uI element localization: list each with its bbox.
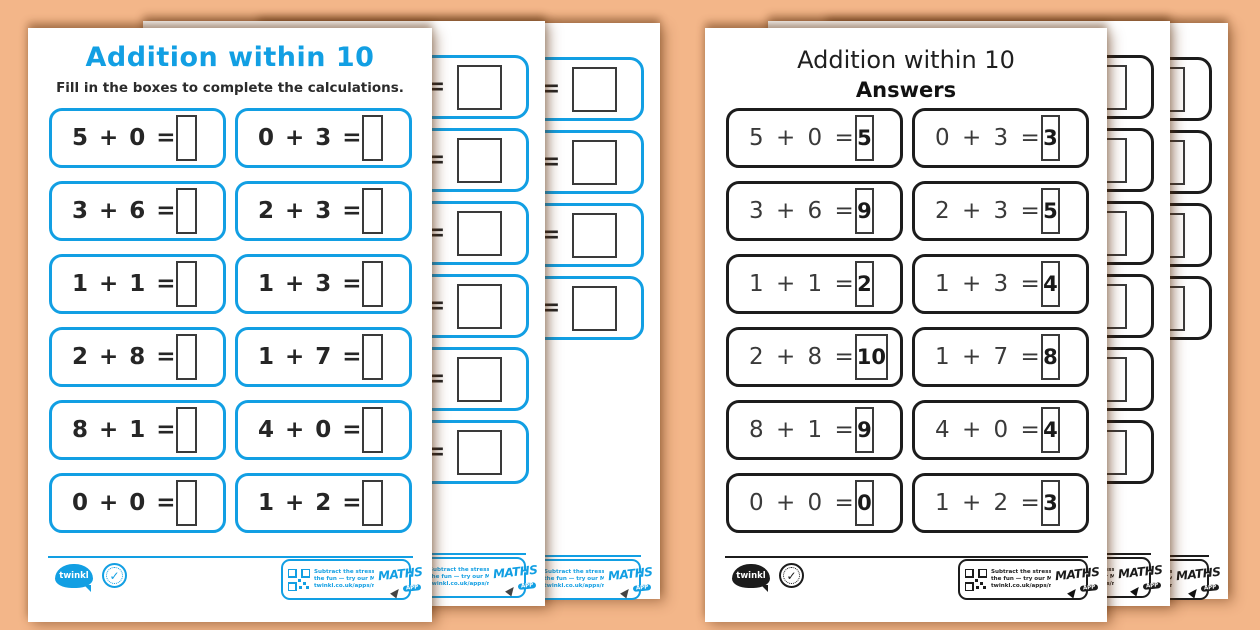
answer-box-empty	[362, 334, 383, 380]
problem-expression: 0 + 3 =	[258, 125, 362, 151]
answer-value: 9	[855, 188, 874, 234]
problem-expression: 1 + 3 =	[935, 271, 1041, 297]
answer-box-empty	[362, 480, 383, 526]
answer-box-empty	[572, 286, 617, 331]
answer-value: 0	[855, 480, 874, 526]
answer-value: 3	[1041, 115, 1060, 161]
promo-line-1: Subtract the stress, multiply	[544, 569, 604, 576]
promo-link: twinkl.co.uk/apps/maths	[544, 583, 604, 590]
maths-app-wordmark: MATHS	[1054, 564, 1099, 583]
footer-divider	[725, 556, 1088, 558]
app-badge: APP	[1200, 584, 1219, 592]
problem-box: 0 + 3 =	[235, 108, 412, 168]
problem-expression: 0 + 0 =	[749, 490, 855, 516]
answer-value: 5	[855, 115, 874, 161]
problem-expression: 2 + 3 =	[935, 198, 1041, 224]
answer-row: 2 + 3 =5	[912, 181, 1089, 241]
problem-expression: 8 + 1 =	[72, 417, 176, 443]
problem-expression: 5 + 0 =	[749, 125, 855, 151]
problem-expression: 2 + 8 =	[72, 344, 176, 370]
problem-box: 1 + 1 =	[49, 254, 226, 314]
problem-expression: 0 + 0 =	[72, 490, 176, 516]
promo-line-2: the fun — try our Maths App!	[429, 574, 489, 581]
promo-line-1: Subtract the stress, multiply	[314, 569, 374, 576]
page-title: Addition within 10	[705, 46, 1107, 74]
cursor-icon	[505, 584, 517, 596]
cursor-icon	[390, 586, 402, 598]
maths-app-wordmark: MATHS	[1117, 562, 1162, 581]
maths-app-promo: Subtract the stress, multiply the fun — …	[958, 559, 1088, 600]
answer-row: 1 + 3 =4	[912, 254, 1089, 314]
answer-box-empty	[572, 67, 617, 112]
answer-box-empty	[176, 188, 197, 234]
problem-expression: 3 + 6 =	[749, 198, 855, 224]
problem-expression: 5 + 0 =	[72, 125, 176, 151]
answer-box-empty	[176, 334, 197, 380]
answer-box-empty	[457, 211, 502, 256]
problem-box: 5 + 0 =	[49, 108, 226, 168]
answer-value: 4	[1041, 261, 1060, 307]
preview-background: = = = = Subtract the stress, multiply th…	[0, 0, 1260, 630]
problem-expression: 1 + 7 =	[258, 344, 362, 370]
problem-box: 4 + 0 =	[235, 400, 412, 460]
answer-row: 1 + 1 =2	[726, 254, 903, 314]
answers-heading: Answers	[705, 78, 1107, 102]
answer-box-empty	[176, 480, 197, 526]
answer-box-empty	[457, 430, 502, 475]
problem-expression: 2 + 8 =	[749, 344, 855, 370]
app-badge: APP	[1142, 582, 1161, 590]
cursor-icon	[1188, 586, 1200, 598]
problem-expression: 1 + 1 =	[749, 271, 855, 297]
answer-box-empty	[457, 357, 502, 402]
quality-approved-badge: ✓	[102, 563, 127, 588]
app-badge: APP	[1079, 584, 1098, 592]
problem-box: 2 + 8 =	[49, 327, 226, 387]
app-badge: APP	[402, 584, 421, 592]
answer-value: 10	[855, 334, 888, 380]
promo-link: twinkl.co.uk/apps/maths	[314, 583, 374, 590]
problem-expression: 4 + 0 =	[258, 417, 362, 443]
promo-text: Subtract the stress, multiply the fun — …	[429, 567, 489, 588]
answer-box-empty	[176, 115, 197, 161]
answer-box-empty	[572, 213, 617, 258]
promo-line-2: the fun — try our Maths App!	[544, 576, 604, 583]
worksheet-page: Addition within 10 Fill in the boxes to …	[28, 28, 432, 622]
answer-value: 8	[1041, 334, 1060, 380]
promo-text: Subtract the stress, multiply the fun — …	[991, 569, 1051, 590]
answer-box-empty	[362, 407, 383, 453]
answer-row: 2 + 8 =10	[726, 327, 903, 387]
promo-text: Subtract the stress, multiply the fun — …	[544, 569, 604, 590]
problem-box: 2 + 3 =	[235, 181, 412, 241]
answer-box-empty	[176, 407, 197, 453]
answer-value: 3	[1041, 480, 1060, 526]
qr-code-icon	[965, 569, 987, 591]
answer-row: 3 + 6 =9	[726, 181, 903, 241]
promo-line-2: the fun — try our Maths App!	[314, 576, 374, 583]
problem-box: 1 + 2 =	[235, 473, 412, 533]
problem-box: 3 + 6 =	[49, 181, 226, 241]
check-icon: ✓	[786, 569, 796, 583]
problem-box: 0 + 0 =	[49, 473, 226, 533]
promo-link: twinkl.co.uk/apps/maths	[429, 581, 489, 588]
answer-row: 0 + 3 =3	[912, 108, 1089, 168]
answer-row: 0 + 0 =0	[726, 473, 903, 533]
answer-row: 1 + 7 =8	[912, 327, 1089, 387]
problem-expression: 1 + 1 =	[72, 271, 176, 297]
answer-box-empty	[457, 284, 502, 329]
problem-expression: 8 + 1 =	[749, 417, 855, 443]
problem-box: 1 + 3 =	[235, 254, 412, 314]
footer-divider	[48, 556, 413, 558]
page-title: Addition within 10	[28, 42, 432, 73]
answer-box-empty	[457, 138, 502, 183]
maths-app-logo: MATHS APP	[1118, 565, 1162, 591]
answers-page: Addition within 10 Answers 5 + 0 =5 0 + …	[705, 28, 1107, 622]
problem-expression: 1 + 3 =	[258, 271, 362, 297]
answer-row: 1 + 2 =3	[912, 473, 1089, 533]
answers-grid: 5 + 0 =5 0 + 3 =3 3 + 6 =9 2 + 3 =5 1 + …	[726, 108, 1089, 533]
promo-line-1: Subtract the stress, multiply	[429, 567, 489, 574]
problem-expression: 3 + 6 =	[72, 198, 176, 224]
answer-value: 5	[1041, 188, 1060, 234]
answer-box-empty	[572, 140, 617, 185]
answer-box-empty	[362, 261, 383, 307]
answer-box-empty	[457, 65, 502, 110]
maths-app-logo: MATHS APP	[493, 565, 537, 591]
problem-expression: 1 + 2 =	[258, 490, 362, 516]
answer-row: 4 + 0 =4	[912, 400, 1089, 460]
twinkl-logo: twinkl	[732, 564, 770, 588]
answer-value: 2	[855, 261, 874, 307]
twinkl-logo: twinkl	[55, 564, 93, 588]
promo-text: Subtract the stress, multiply the fun — …	[314, 569, 374, 590]
answer-box-empty	[176, 261, 197, 307]
app-badge: APP	[632, 584, 651, 592]
maths-app-wordmark: MATHS	[492, 562, 537, 581]
problems-grid: 5 + 0 = 0 + 3 = 3 + 6 = 2 + 3 = 1 + 1 = …	[49, 108, 412, 533]
answer-box-empty	[362, 115, 383, 161]
problem-box: 1 + 7 =	[235, 327, 412, 387]
maths-app-logo: MATHS APP	[1176, 567, 1220, 593]
maths-app-wordmark: MATHS	[607, 564, 652, 583]
maths-app-wordmark: MATHS	[1175, 564, 1220, 583]
cursor-icon	[620, 586, 632, 598]
problem-box: 8 + 1 =	[49, 400, 226, 460]
cursor-icon	[1130, 584, 1142, 596]
answer-box-empty	[362, 188, 383, 234]
promo-line-2: the fun — try our Maths App!	[991, 576, 1051, 583]
promo-line-1: Subtract the stress, multiply	[991, 569, 1051, 576]
qr-code-icon	[288, 569, 310, 591]
problem-expression: 0 + 3 =	[935, 125, 1041, 151]
maths-app-logo: MATHS APP	[608, 567, 652, 593]
problem-expression: 2 + 3 =	[258, 198, 362, 224]
page-instructions: Fill in the boxes to complete the calcul…	[28, 80, 432, 96]
app-badge: APP	[517, 582, 536, 590]
answer-value: 9	[855, 407, 874, 453]
problem-expression: 4 + 0 =	[935, 417, 1041, 443]
problem-expression: 1 + 2 =	[935, 490, 1041, 516]
maths-app-wordmark: MATHS	[377, 564, 422, 583]
problem-expression: 1 + 7 =	[935, 344, 1041, 370]
cursor-icon	[1067, 586, 1079, 598]
answer-row: 8 + 1 =9	[726, 400, 903, 460]
maths-app-logo: MATHS APP	[378, 567, 422, 593]
check-icon: ✓	[109, 569, 119, 583]
answer-row: 5 + 0 =5	[726, 108, 903, 168]
answer-value: 4	[1041, 407, 1060, 453]
quality-approved-badge: ✓	[779, 563, 804, 588]
promo-link: twinkl.co.uk/apps/maths	[991, 583, 1051, 590]
maths-app-promo: Subtract the stress, multiply the fun — …	[281, 559, 411, 600]
maths-app-logo: MATHS APP	[1055, 567, 1099, 593]
